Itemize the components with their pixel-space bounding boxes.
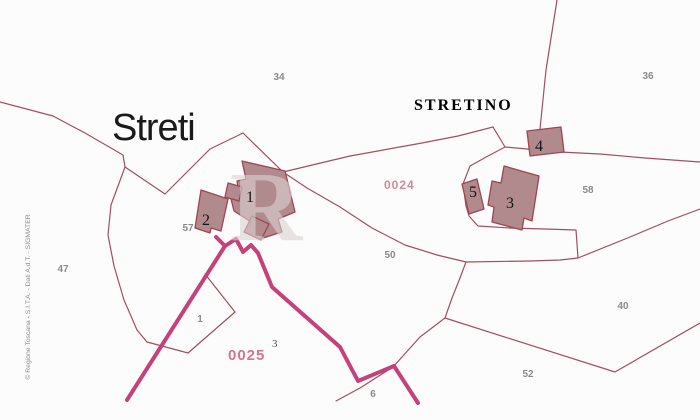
place-label-streti: Streti [112,107,195,149]
watermark-letter: R [230,151,304,262]
parcel-57-label: 57 [182,223,194,234]
parcel-52-label: 52 [522,369,534,380]
boundary-east-ridge [283,127,700,172]
parcel-58-label: 58 [582,185,594,196]
building-2-shape [195,190,228,233]
parcel-47-label: 47 [57,264,69,275]
parcel-boundaries [0,0,700,401]
building-2-number: 2 [202,212,210,229]
zone-code-0025: 0025 [228,347,265,364]
boundary-parcel52 [445,318,700,372]
parcel-1-label: 1 [197,314,203,325]
building-4-shape [527,127,564,156]
parcel-34-label: 34 [273,72,285,83]
building-1-number: 1 [246,189,254,206]
road-southwest-branch [127,246,225,400]
building-4-number: 4 [535,138,543,155]
map-canvas: R Streti STRETINO 0024 0025 3 1 2 3 4 5 … [0,0,700,420]
parcel-50-label: 50 [384,250,396,261]
place-label-stretino: STRETINO [414,97,513,114]
parcel-36-label: 36 [642,71,654,82]
boundary-top-to-building4 [540,0,557,129]
building-3-number: 3 [506,195,514,212]
boundary-junction-connector [445,262,466,318]
building-5-number: 5 [469,184,477,201]
cadastral-map: R Streti STRETINO 0024 0025 3 1 2 3 4 5 … [0,0,700,420]
copyright-credit: © Regione Toscana - S.I.T.A. - Dati A.d.… [24,214,32,379]
boundary-west-main [0,102,125,167]
boundary-notch-to-right-edge [578,209,700,258]
parcel-6-label: 6 [370,389,376,400]
zone-code-0024: 0024 [384,178,415,192]
road-south-spur [394,366,418,403]
boundary-parcel1 [188,274,235,353]
parcel-40-label: 40 [617,301,629,312]
boundary-junction-southwest [336,318,445,401]
zone-code-0025-superscript: 3 [272,338,278,350]
